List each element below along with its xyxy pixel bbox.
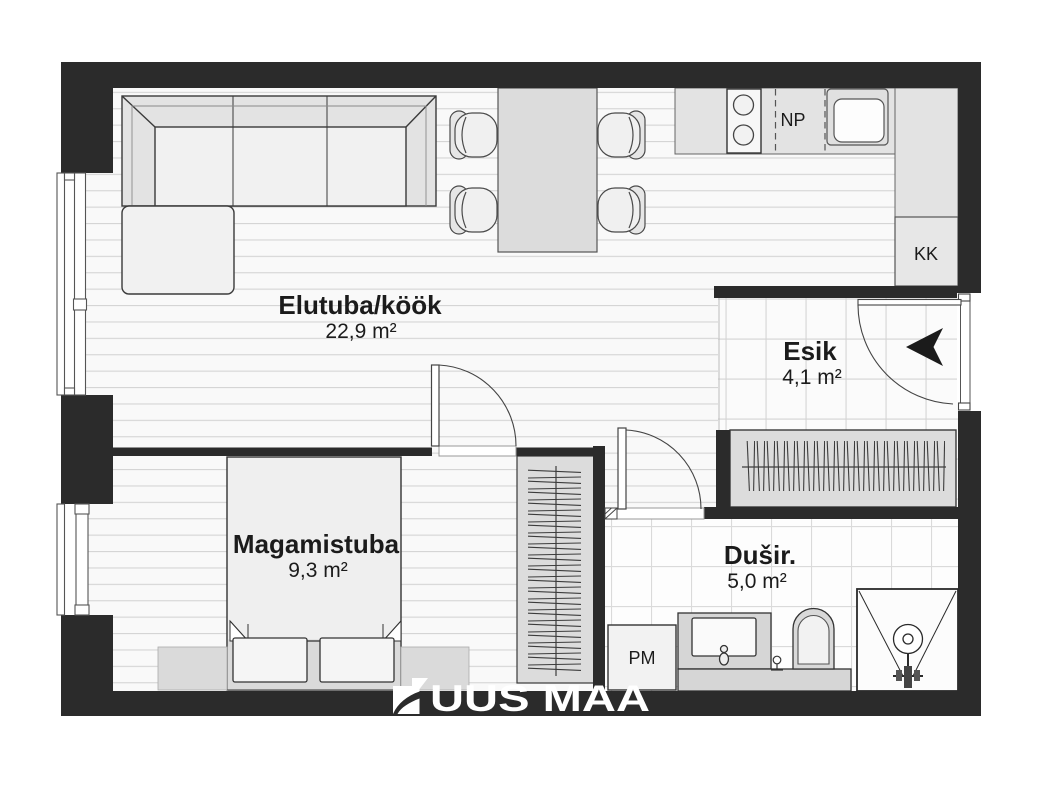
svg-text:UUS MAA: UUS MAA (430, 678, 650, 719)
svg-text:Esik: Esik (783, 336, 837, 366)
svg-text:KK: KK (914, 244, 938, 264)
svg-text:Magamistuba: Magamistuba (233, 529, 400, 559)
svg-text:PM: PM (629, 648, 656, 668)
svg-text:Dušir.: Dušir. (724, 540, 796, 570)
svg-text:Elutuba/köök: Elutuba/köök (278, 290, 442, 320)
svg-text:NP: NP (780, 110, 805, 130)
svg-text:22,9 m²: 22,9 m² (325, 320, 396, 343)
svg-text:9,3 m²: 9,3 m² (288, 559, 348, 582)
svg-text:5,0 m²: 5,0 m² (727, 570, 787, 593)
svg-text:4,1 m²: 4,1 m² (782, 366, 842, 389)
